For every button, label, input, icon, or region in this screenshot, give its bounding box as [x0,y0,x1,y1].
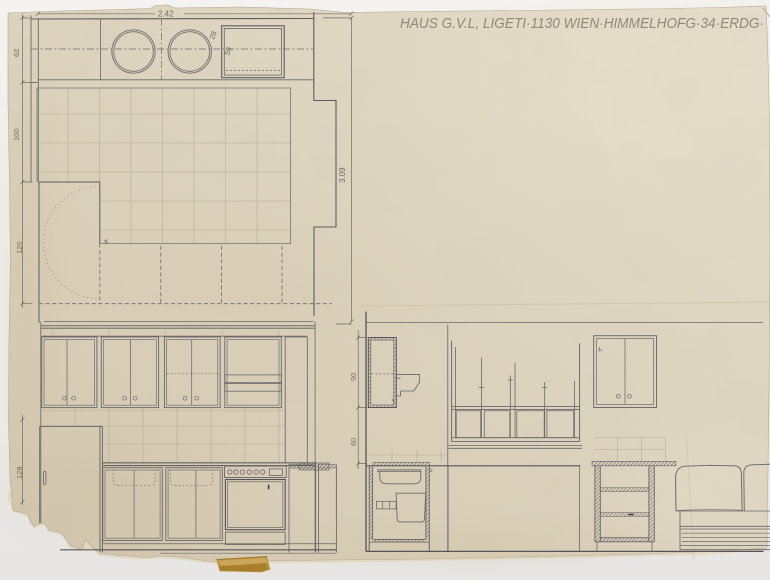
svg-text:100: 100 [12,128,21,141]
svg-text:62: 62 [12,49,21,57]
svg-text:60: 60 [349,438,358,446]
svg-text:3.09: 3.09 [338,167,347,183]
svg-text:HAUS G.V.L, LIGETI·1130 WIEN·H: HAUS G.V.L, LIGETI·1130 WIEN·HIMMELHOFG·… [400,15,764,32]
svg-text:120: 120 [15,241,24,254]
svg-text:128: 128 [15,466,24,479]
svg-text:2.42: 2.42 [158,10,174,19]
svg-text:90: 90 [349,373,358,381]
